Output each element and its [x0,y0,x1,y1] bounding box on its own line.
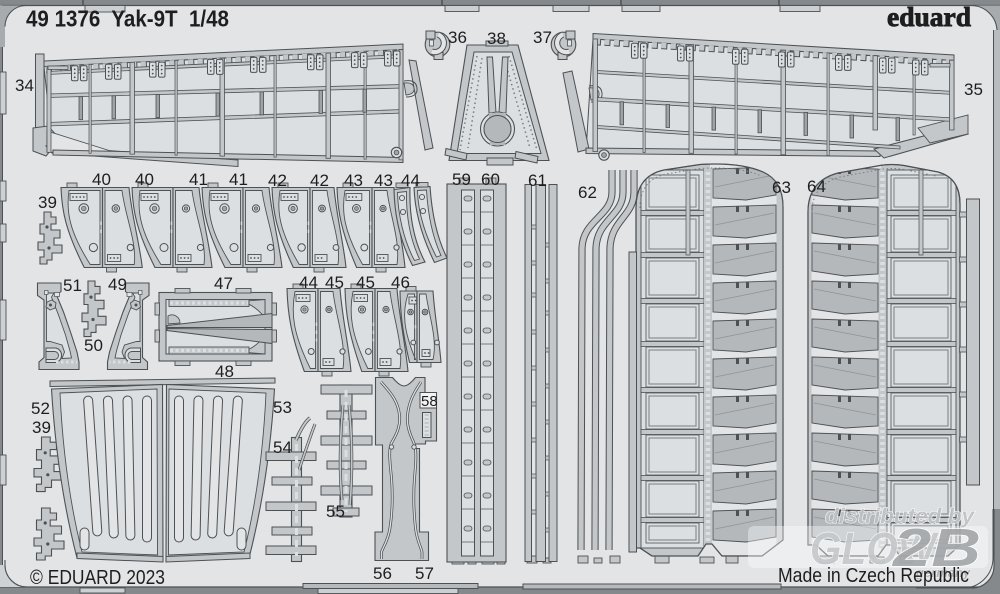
svg-text:56: 56 [373,564,392,583]
svg-text:Made in Czech Republic: Made in Czech Republic [778,564,969,587]
svg-text:53: 53 [273,398,292,417]
svg-text:57: 57 [415,564,434,583]
svg-text:60: 60 [481,170,500,189]
svg-text:58: 58 [421,393,438,410]
svg-text:43: 43 [374,171,393,190]
svg-text:34: 34 [15,76,34,95]
svg-text:40: 40 [92,170,111,189]
svg-text:40: 40 [135,170,154,189]
svg-text:44: 44 [299,273,318,292]
svg-text:45: 45 [325,273,344,292]
svg-text:eduard: eduard [887,2,971,32]
svg-text:44: 44 [401,171,420,190]
svg-text:42: 42 [310,171,329,190]
svg-text:36: 36 [448,28,467,47]
svg-text:39: 39 [38,193,57,212]
svg-text:38: 38 [487,29,506,48]
svg-text:59: 59 [452,170,471,189]
svg-text:43: 43 [344,171,363,190]
svg-text:61: 61 [528,171,547,190]
svg-text:35: 35 [964,80,983,99]
svg-text:45: 45 [356,273,375,292]
svg-text:52: 52 [31,399,50,418]
svg-text:55: 55 [326,502,345,521]
svg-text:54: 54 [273,438,292,457]
svg-text:42: 42 [268,171,287,190]
svg-text:51: 51 [63,276,82,295]
svg-text:41: 41 [189,170,208,189]
svg-text:41: 41 [229,170,248,189]
svg-text:37: 37 [533,28,552,47]
svg-text:49 1376 Yak-9T 1/48: 49 1376 Yak-9T 1/48 [26,6,229,32]
svg-text:64: 64 [807,177,826,196]
svg-text:46: 46 [391,273,410,292]
svg-text:62: 62 [578,183,597,202]
svg-text:50: 50 [84,336,103,355]
svg-text:49: 49 [108,275,127,294]
svg-text:© EDUARD 2023: © EDUARD 2023 [30,566,165,589]
svg-text:63: 63 [772,178,791,197]
svg-text:47: 47 [214,274,233,293]
svg-text:39: 39 [32,418,51,437]
